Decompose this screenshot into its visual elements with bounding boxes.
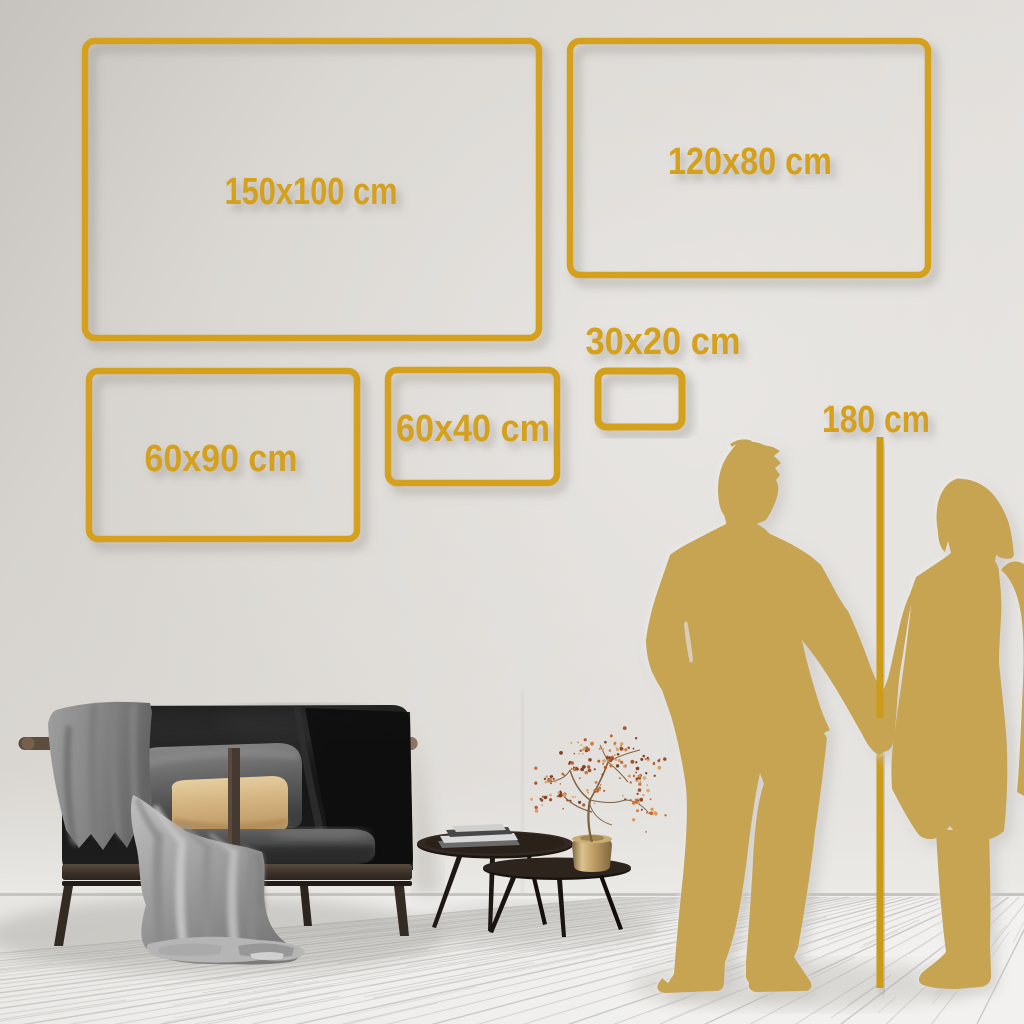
svg-text:180 cm: 180 cm [822,399,930,441]
svg-text:120x80 cm: 120x80 cm [668,141,832,183]
svg-text:60x90 cm: 60x90 cm [145,438,298,480]
svg-text:150x100 cm: 150x100 cm [225,171,398,213]
svg-text:30x20 cm: 30x20 cm [586,321,741,363]
svg-text:60x40 cm: 60x40 cm [396,408,550,450]
